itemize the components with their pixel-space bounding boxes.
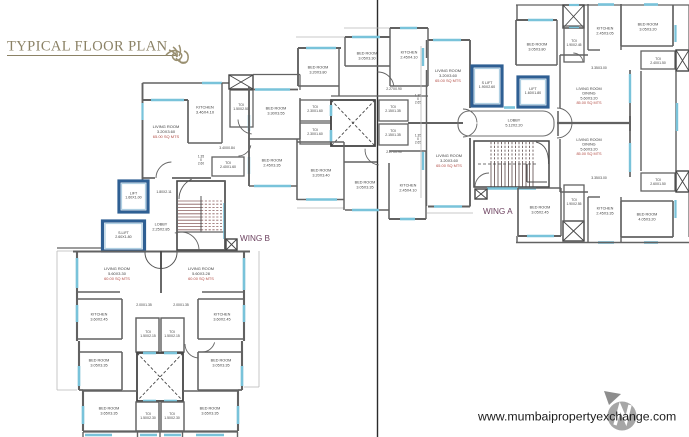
svg-text:BED ROOM: BED ROOM [200,407,221,411]
svg-text:LOBBY: LOBBY [155,223,168,227]
svg-text:2.65: 2.65 [415,101,421,105]
svg-text:3.05X3.80: 3.05X3.80 [528,47,545,51]
svg-text:3.40X0.84: 3.40X0.84 [219,146,235,150]
svg-text:5.60X3.20: 5.60X3.20 [580,147,597,151]
svg-text:2.25X2.85: 2.25X2.85 [152,227,169,231]
svg-text:KITCHEN: KITCHEN [597,207,614,211]
svg-text:3.65X3.35: 3.65X3.35 [201,411,218,415]
svg-text:2.60: 2.60 [198,162,204,166]
svg-text:LIVING ROOM: LIVING ROOM [576,87,601,91]
svg-text:3.35X3.00: 3.35X3.00 [591,66,607,70]
svg-text:LIFT: LIFT [529,87,537,91]
svg-text:85.00 SQ MTS: 85.00 SQ MTS [576,152,602,156]
svg-text:S.LIFT: S.LIFT [118,231,130,235]
svg-text:2.15X1.35: 2.15X1.35 [385,133,401,137]
svg-text:2.45X3.05: 2.45X3.05 [596,31,613,35]
svg-text:BED ROOM: BED ROOM [311,169,332,173]
svg-text:1.60X1.80: 1.60X1.80 [525,91,541,95]
svg-text:BED ROOM: BED ROOM [262,159,283,163]
svg-text:1.60X1.00: 1.60X1.00 [125,196,141,200]
svg-text:65.00 SQ MTS: 65.00 SQ MTS [153,134,180,139]
svg-text:3.30X3.55: 3.30X3.55 [267,111,284,115]
svg-text:BED ROOM: BED ROOM [266,107,287,111]
svg-text:85.00 SQ MTS: 85.00 SQ MTS [576,101,602,105]
svg-text:DINING: DINING [582,143,595,147]
svg-text:2.27X0.90: 2.27X0.90 [386,87,402,91]
svg-text:BED ROOM: BED ROOM [89,359,110,363]
svg-text:3.05X2.45: 3.05X2.45 [531,210,548,214]
svg-text:3.20X3.80: 3.20X3.80 [309,70,326,74]
svg-text:2.45X3.35: 2.45X3.35 [263,163,280,167]
svg-text:2.15X1.35: 2.15X1.35 [385,109,401,113]
svg-text:BED ROOM: BED ROOM [357,52,378,56]
svg-text:4.05X3.20: 4.05X3.20 [638,217,655,221]
svg-text:3.46X4.10: 3.46X4.10 [196,110,215,115]
svg-text:65.00 SQ MTS: 65.00 SQ MTS [436,163,462,168]
svg-text:2.40X1.50: 2.40X1.50 [650,61,666,65]
svg-text:3.35X3.00: 3.35X3.00 [591,176,607,180]
svg-text:3.60X2.45: 3.60X2.45 [90,317,107,321]
svg-text:3.05X3.35: 3.05X3.35 [356,185,373,189]
svg-text:BED ROOM: BED ROOM [638,23,659,27]
svg-text:3.05X3.20: 3.05X3.20 [639,27,656,31]
svg-text:BED ROOM: BED ROOM [99,407,120,411]
svg-text:60.00 SQ MTS: 60.00 SQ MTS [188,276,214,281]
svg-text:KITCHEN: KITCHEN [401,51,418,55]
svg-text:2.00X1.35: 2.00X1.35 [136,303,152,307]
svg-text:2.45X4.10: 2.45X4.10 [400,55,417,59]
svg-text:1.50X2.15: 1.50X2.15 [140,334,156,338]
svg-text:BED ROOM: BED ROOM [530,206,551,210]
svg-text:3.65X3.35: 3.65X3.35 [100,411,117,415]
svg-text:www.mumbaipropertyexchange.com: www.mumbaipropertyexchange.com [477,410,676,424]
svg-text:KITCHEN: KITCHEN [400,184,417,188]
svg-text:2.40X1.60: 2.40X1.60 [220,165,236,169]
svg-text:5.60X3.20: 5.60X3.20 [580,96,597,100]
svg-text:1.80X2.11: 1.80X2.11 [156,190,171,194]
svg-text:1.50X2.30: 1.50X2.30 [140,416,156,420]
svg-text:LIFT: LIFT [130,191,138,195]
svg-text:S LIFT: S LIFT [482,81,494,85]
svg-text:LIVING ROOM: LIVING ROOM [576,138,601,142]
svg-text:BED ROOM: BED ROOM [355,181,376,185]
svg-text:2.45X3.35: 2.45X3.35 [596,211,613,215]
svg-text:DINING: DINING [582,92,595,96]
svg-text:3.05X3.35: 3.05X3.35 [212,363,229,367]
svg-text:BED ROOM: BED ROOM [211,359,232,363]
svg-text:65.00 SQ MTS: 65.00 SQ MTS [435,78,461,83]
svg-text:KITCHEN: KITCHEN [91,313,108,317]
svg-text:5.12X2.20: 5.12X2.20 [505,123,522,127]
svg-text:KITCHEN: KITCHEN [214,313,231,317]
svg-text:3.20X3.40: 3.20X3.40 [312,173,329,177]
svg-text:2.45X4.10: 2.45X4.10 [399,188,416,192]
svg-text:2.60X1.80: 2.60X1.80 [115,235,131,239]
svg-text:TOI: TOI [225,161,231,165]
svg-text:BED ROOM: BED ROOM [637,213,658,217]
svg-text:LOBBY: LOBBY [508,119,521,123]
svg-text:3.05X3.30: 3.05X3.30 [358,56,375,60]
svg-text:BED ROOM: BED ROOM [308,66,329,70]
svg-text:1.90X2.55: 1.90X2.55 [566,202,581,206]
svg-text:2.30X1.60: 2.30X1.60 [307,132,323,136]
svg-text:WING B: WING B [240,234,271,243]
svg-text:2.30X1.60: 2.30X1.60 [307,109,323,113]
svg-text:1.50X2.15: 1.50X2.15 [164,334,180,338]
svg-text:KITCHEN: KITCHEN [597,27,614,31]
svg-text:1.90X2.60: 1.90X2.60 [479,85,495,89]
svg-text:3.60X2.45: 3.60X2.45 [213,317,230,321]
svg-text:TYPICAL FLOOR PLAN: TYPICAL FLOOR PLAN [7,39,168,55]
svg-text:BED ROOM: BED ROOM [527,43,548,47]
svg-text:60.00 SQ MTS: 60.00 SQ MTS [104,276,130,281]
svg-text:2.65: 2.65 [415,141,421,145]
svg-text:WING A: WING A [483,207,513,216]
svg-text:1.50X2.30: 1.50X2.30 [164,416,180,420]
svg-text:1.50X2.50: 1.50X2.50 [233,107,249,111]
svg-text:2.00X1.35: 2.00X1.35 [173,303,189,307]
svg-text:3.05X3.35: 3.05X3.35 [90,363,107,367]
svg-text:2.60X1.50: 2.60X1.50 [650,182,666,186]
svg-text:1.90X2.45: 1.90X2.45 [566,43,581,47]
